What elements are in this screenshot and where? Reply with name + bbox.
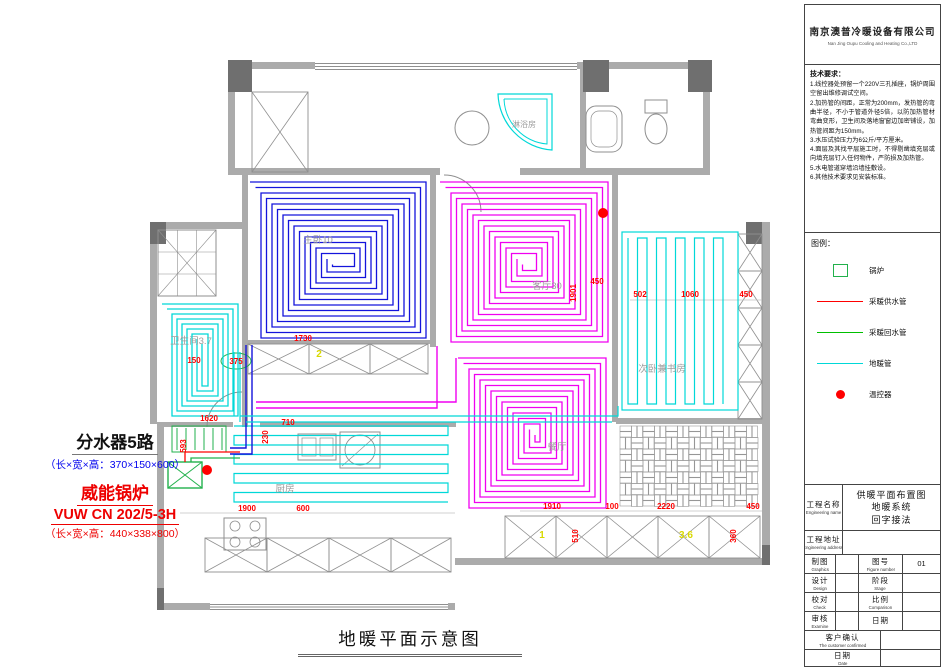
bathtub xyxy=(586,106,622,152)
tile xyxy=(683,495,688,507)
legend-label: 地暖管 xyxy=(869,358,892,369)
dimension-label: 2220 xyxy=(657,502,675,511)
tile xyxy=(724,484,736,489)
tile xyxy=(666,438,671,450)
legend-item-return-pipe: 采暖回水管 xyxy=(811,317,934,348)
tech-item: 6.其他技术要求见安装标准。 xyxy=(810,173,935,182)
legend-label: 采暖供水管 xyxy=(869,296,907,307)
tile xyxy=(752,426,757,438)
customer-label: 客户确认 The customer confirmed xyxy=(805,631,881,649)
project-address-label: 工程地址 Engineering address xyxy=(805,531,843,554)
stage-value xyxy=(903,574,940,592)
tile xyxy=(701,472,706,484)
dimension-label: 1901 xyxy=(569,284,578,302)
tile xyxy=(655,484,667,489)
tile xyxy=(712,484,717,496)
dimension-label: 150 xyxy=(187,356,201,365)
drawing-sheet: 主卧10客厅30次卧兼书房餐厅厨房卫生间3.7淋浴房17301620593230… xyxy=(0,0,946,672)
tile xyxy=(701,466,713,471)
company-name-cn: 南京澳普冷暖设备有限公司 xyxy=(809,24,935,38)
tile xyxy=(666,455,678,460)
tile xyxy=(678,438,690,443)
tile xyxy=(620,449,632,454)
tile xyxy=(660,449,665,461)
date-label: 日期 Date xyxy=(805,650,881,666)
tile xyxy=(678,472,683,484)
figure-number-value: 01 xyxy=(903,555,940,573)
examine-value xyxy=(836,612,859,630)
tile xyxy=(729,472,734,484)
tile xyxy=(678,461,690,466)
tile xyxy=(747,426,752,438)
column xyxy=(157,588,164,610)
room-label: 次卧兼书房 xyxy=(638,363,686,375)
tile xyxy=(660,426,665,438)
tile xyxy=(643,484,648,496)
room-label: 客厅30 xyxy=(532,280,562,292)
tile xyxy=(747,489,759,494)
check-value xyxy=(836,593,859,611)
customer-row: 客户确认 The customer confirmed xyxy=(805,631,940,650)
boiler-annotation: 威能锅炉 VUW CN 202/5-3H （长×宽×高：440×338×800） xyxy=(22,479,208,541)
tile xyxy=(678,466,690,471)
dimension-label: 1900 xyxy=(238,504,256,513)
tile xyxy=(655,438,667,443)
tile xyxy=(643,478,655,483)
gas-stove xyxy=(224,518,266,550)
tile xyxy=(752,449,757,461)
examine-label: 审核 Examine xyxy=(805,612,836,630)
pipe-run xyxy=(256,358,456,402)
tile xyxy=(747,438,759,443)
company-box: 南京澳普冷暖设备有限公司 Nan Jing Oupu Cooling and H… xyxy=(805,5,940,65)
tile xyxy=(649,461,654,473)
tile xyxy=(632,489,644,494)
boiler-model: VUW CN 202/5-3H xyxy=(51,507,179,525)
dimension-label: 1620 xyxy=(200,414,218,423)
tile xyxy=(620,472,632,477)
tile xyxy=(620,432,632,437)
tile xyxy=(683,472,688,484)
tile xyxy=(666,426,678,431)
drawing-title: 地暖平面示意图 xyxy=(298,626,522,657)
tile xyxy=(643,455,655,460)
tile xyxy=(735,484,740,496)
tile xyxy=(689,426,701,431)
dimension-label: 450 xyxy=(746,502,760,511)
tech-item: 2.加热管的间距，正常为200mm，发热管的弯曲半径，不小于管道外径5倍，以防加… xyxy=(810,99,935,136)
tile xyxy=(666,461,671,473)
tile xyxy=(752,472,757,484)
tile xyxy=(706,472,711,484)
wall xyxy=(150,222,157,424)
tile xyxy=(632,466,644,471)
tile xyxy=(747,461,759,466)
tile xyxy=(724,438,736,443)
tile xyxy=(660,472,665,484)
tile xyxy=(724,461,736,466)
tile xyxy=(735,449,747,454)
legend-box: 图例： 锅炉 采暖供水管 采暖回水管 地暖管 温控器 xyxy=(805,233,940,485)
tile xyxy=(672,484,677,496)
tile xyxy=(712,472,724,477)
tile xyxy=(695,438,700,450)
legend-label: 采暖回水管 xyxy=(869,327,907,338)
check-scale-row: 校对 Check 比例 Comparison xyxy=(805,593,940,612)
customer-value xyxy=(881,631,940,649)
scale-value xyxy=(903,593,940,611)
tile xyxy=(701,426,706,438)
tile xyxy=(741,484,746,496)
tile xyxy=(689,455,701,460)
room-label: 餐厅 xyxy=(547,441,567,453)
tile xyxy=(666,432,678,437)
graphics-number-row: 制图 Graphics 图号 Figure number 01 xyxy=(805,555,940,574)
project-name-value: 供暖平面布置图 地暖系统 回字接法 xyxy=(843,485,940,530)
tile xyxy=(666,472,678,477)
wall xyxy=(762,222,770,565)
tile xyxy=(632,495,637,507)
column xyxy=(746,222,762,244)
tile xyxy=(620,461,625,473)
sink-basin xyxy=(302,438,316,456)
legend-item-supply-pipe: 采暖供水管 xyxy=(811,286,934,317)
tile xyxy=(632,472,637,484)
bathtub xyxy=(591,111,617,147)
return-pipe-icon xyxy=(817,332,863,333)
tile xyxy=(689,501,701,506)
design-value xyxy=(836,574,859,592)
design-label: 设计 Design xyxy=(805,574,836,592)
tile xyxy=(712,432,724,437)
tile xyxy=(632,449,637,461)
tile xyxy=(655,489,667,494)
room-label: 主卧10 xyxy=(303,234,333,246)
washing-machine-line xyxy=(342,434,378,466)
tile xyxy=(666,495,678,500)
legend-item-floor-pipe: 地暖管 xyxy=(811,348,934,379)
tile xyxy=(735,438,740,450)
master-bedroom-coil xyxy=(250,182,426,338)
dimension-label: 2 xyxy=(316,349,322,360)
tile xyxy=(712,449,724,454)
number-label: 图号 Figure number xyxy=(859,555,903,573)
tile xyxy=(620,478,632,483)
wall xyxy=(612,175,618,422)
tile xyxy=(729,495,734,507)
tile xyxy=(620,495,632,500)
tile xyxy=(689,461,694,473)
manifold-title: 分水器5路 xyxy=(72,428,157,455)
tile xyxy=(678,484,690,489)
dimension-label: 1 xyxy=(539,530,545,541)
tile xyxy=(632,461,644,466)
dimension-label: 450 xyxy=(590,277,604,286)
tile xyxy=(701,438,713,443)
tile xyxy=(706,495,711,507)
tile xyxy=(689,495,701,500)
tile xyxy=(735,501,747,506)
graphics-value xyxy=(836,555,859,573)
sink-basin xyxy=(320,438,333,456)
dimension-label: 3.6 xyxy=(679,530,693,541)
tile xyxy=(655,449,660,461)
tile xyxy=(683,426,688,438)
tile xyxy=(620,455,632,460)
tile xyxy=(706,426,711,438)
design-stage-row: 设计 Design 阶段 Stage xyxy=(805,574,940,593)
tile xyxy=(655,461,667,466)
tile xyxy=(643,472,655,477)
tile xyxy=(689,478,701,483)
toilet xyxy=(645,114,667,144)
company-name-en: Nan Jing Oupu Cooling and Heating Co.,LT… xyxy=(828,41,918,46)
manifold-annotation: 分水器5路 （长×宽×高：370×150×600） xyxy=(22,428,208,472)
tile xyxy=(632,438,644,443)
tile xyxy=(643,495,655,500)
dimension-label: 510 xyxy=(571,529,580,543)
tile xyxy=(747,443,759,448)
tile xyxy=(747,449,752,461)
tile xyxy=(724,443,736,448)
tile xyxy=(655,466,667,471)
manifold-dimensions: （长×宽×高：370×150×600） xyxy=(22,457,208,472)
legend-label: 锅炉 xyxy=(869,265,884,276)
dimension-label: 1060 xyxy=(681,290,699,299)
master-bedroom-coil xyxy=(256,188,421,333)
examine-date-row: 审核 Examine 日期 xyxy=(805,612,940,631)
living-room-coil xyxy=(440,182,608,342)
tile xyxy=(678,495,683,507)
tile xyxy=(678,443,690,448)
tile xyxy=(701,461,713,466)
tile xyxy=(718,484,723,496)
tile xyxy=(712,495,724,500)
legend-label: 温控器 xyxy=(869,389,892,400)
tile xyxy=(666,478,678,483)
tile xyxy=(689,438,694,450)
tile xyxy=(735,472,747,477)
thermostat-icon xyxy=(836,390,845,399)
tile xyxy=(741,438,746,450)
tile xyxy=(689,484,694,496)
tile xyxy=(655,472,660,484)
tile xyxy=(724,426,729,438)
tile xyxy=(678,426,683,438)
dimension-label: 450 xyxy=(739,290,753,299)
tile xyxy=(626,438,631,450)
wall xyxy=(455,558,765,565)
tile xyxy=(626,484,631,496)
tile xyxy=(643,461,648,473)
dimension-label: 710 xyxy=(281,418,295,427)
toilet xyxy=(645,100,667,113)
tile xyxy=(643,438,648,450)
date-small-value xyxy=(903,612,940,630)
tech-title: 技术要求： xyxy=(810,69,935,79)
tile xyxy=(637,472,642,484)
tile xyxy=(620,426,632,431)
study-bedroom-coil-border xyxy=(622,232,738,410)
tile xyxy=(695,461,700,473)
tile xyxy=(666,484,671,496)
technical-requirements: 技术要求： 1.线控器处预留一个220V三孔插座，锅炉周围空留出维修调试空间。 … xyxy=(805,65,940,233)
tile xyxy=(724,489,736,494)
tile xyxy=(729,449,734,461)
tile xyxy=(735,426,747,431)
tile xyxy=(735,455,747,460)
date-row: 日期 Date xyxy=(805,650,940,666)
tile xyxy=(643,426,655,431)
tile xyxy=(689,432,701,437)
tile xyxy=(701,443,713,448)
room-label: 厨房 xyxy=(275,483,294,495)
tile xyxy=(724,466,736,471)
tile xyxy=(655,426,660,438)
tile xyxy=(718,461,723,473)
dimension-label: 1910 xyxy=(543,502,561,511)
tech-item: 4.面层及其找平层施工时，不得剔凿填充层或向填充层钉入任何物件，严防损及加热管。 xyxy=(810,145,935,164)
boiler-title: 威能锅炉 xyxy=(77,479,153,506)
tile xyxy=(712,461,717,473)
tile xyxy=(706,449,711,461)
tech-item: 1.线控器处预留一个220V三孔插座，锅炉周围空留出维修调试空间。 xyxy=(810,80,935,99)
tile xyxy=(735,461,740,473)
legend-title: 图例： xyxy=(811,238,934,249)
dimension-label: 600 xyxy=(296,504,310,513)
tile xyxy=(701,484,713,489)
column xyxy=(228,60,252,92)
table xyxy=(455,111,489,145)
stove-burner xyxy=(250,537,260,547)
project-name-label: 工程名称 Engineering name xyxy=(805,485,843,530)
title-block-panel: 南京澳普冷暖设备有限公司 Nan Jing Oupu Cooling and H… xyxy=(804,4,941,667)
stove-burner xyxy=(250,521,260,531)
tile xyxy=(683,449,688,461)
dimension-label: 100 xyxy=(605,502,619,511)
tile xyxy=(718,438,723,450)
tile xyxy=(747,472,752,484)
tile xyxy=(637,449,642,461)
boiler-symbol-icon xyxy=(833,264,848,277)
tile xyxy=(724,495,729,507)
stove-burner xyxy=(230,521,240,531)
floor-heating-pipe-icon xyxy=(817,363,863,364)
wall xyxy=(242,175,248,427)
tile xyxy=(741,461,746,473)
tile xyxy=(678,489,690,494)
tile xyxy=(712,438,717,450)
walls xyxy=(150,60,770,610)
tile xyxy=(672,461,677,473)
tile xyxy=(678,449,683,461)
room-label: 卫生间3.7 xyxy=(170,335,212,347)
tile xyxy=(701,495,706,507)
tile xyxy=(637,426,642,438)
tile xyxy=(729,426,734,438)
tile xyxy=(666,449,678,454)
tile xyxy=(747,466,759,471)
tile xyxy=(649,438,654,450)
tile xyxy=(735,478,747,483)
tile xyxy=(735,495,747,500)
tile xyxy=(649,484,654,496)
study-bedroom-coil xyxy=(628,238,723,404)
project-name-row: 工程名称 Engineering name 供暖平面布置图 地暖系统 回字接法 xyxy=(805,485,940,531)
tile xyxy=(712,501,724,506)
supply-pipe-icon xyxy=(817,301,863,302)
title-block: 工程名称 Engineering name 供暖平面布置图 地暖系统 回字接法 … xyxy=(805,485,940,666)
tile xyxy=(643,449,655,454)
tile xyxy=(689,472,701,477)
tile xyxy=(724,449,729,461)
wall xyxy=(245,340,433,344)
dimension-label: 502 xyxy=(633,290,647,299)
dimension-label: 360 xyxy=(729,529,738,543)
tile xyxy=(735,432,747,437)
tile xyxy=(643,501,655,506)
tile xyxy=(712,455,724,460)
scale-label: 比例 Comparison xyxy=(859,593,903,611)
room-label: 淋浴房 xyxy=(512,119,536,129)
graphics-label: 制图 Graphics xyxy=(805,555,836,573)
tile xyxy=(643,432,655,437)
tile xyxy=(637,495,642,507)
tile xyxy=(701,489,713,494)
tile xyxy=(701,449,706,461)
column xyxy=(583,60,609,92)
wall xyxy=(430,175,436,347)
legend-item-boiler: 锅炉 xyxy=(811,255,934,286)
tile xyxy=(632,426,637,438)
tile xyxy=(620,501,632,506)
wall xyxy=(228,168,440,175)
date-small-label: 日期 xyxy=(859,612,903,630)
dimension-label: 375 xyxy=(229,357,243,366)
check-label: 校对 Check xyxy=(805,593,836,611)
tile xyxy=(672,438,677,450)
wall xyxy=(520,168,710,175)
fixtures xyxy=(158,92,762,572)
tile xyxy=(620,484,625,496)
tile xyxy=(695,484,700,496)
tile xyxy=(724,472,729,484)
column xyxy=(762,545,770,565)
living-room-coil xyxy=(446,188,603,337)
stage-label: 阶段 Stage xyxy=(859,574,903,592)
tech-item: 3.水压试验压力为6公斤/平方厘米。 xyxy=(810,136,935,145)
dimension-label: 1730 xyxy=(294,334,312,343)
project-address-value xyxy=(843,531,940,554)
thermostat-dot xyxy=(598,208,608,218)
date-value xyxy=(881,650,940,666)
tech-item: 5.水电管道穿墙沿墙挂敷设。 xyxy=(810,164,935,173)
tile xyxy=(655,443,667,448)
tile xyxy=(689,449,701,454)
tile xyxy=(747,484,759,489)
project-address-row: 工程地址 Engineering address xyxy=(805,531,940,555)
tile xyxy=(626,461,631,473)
tile xyxy=(712,478,724,483)
legend-item-thermostat: 温控器 xyxy=(811,379,934,410)
dining-room-coil xyxy=(464,364,601,503)
dining-room-coil xyxy=(458,358,606,508)
boiler-dimensions: （长×宽×高：440×338×800） xyxy=(22,526,208,541)
tile xyxy=(712,426,724,431)
tile xyxy=(620,438,625,450)
column xyxy=(688,60,712,92)
dimension-label: 230 xyxy=(261,430,270,444)
